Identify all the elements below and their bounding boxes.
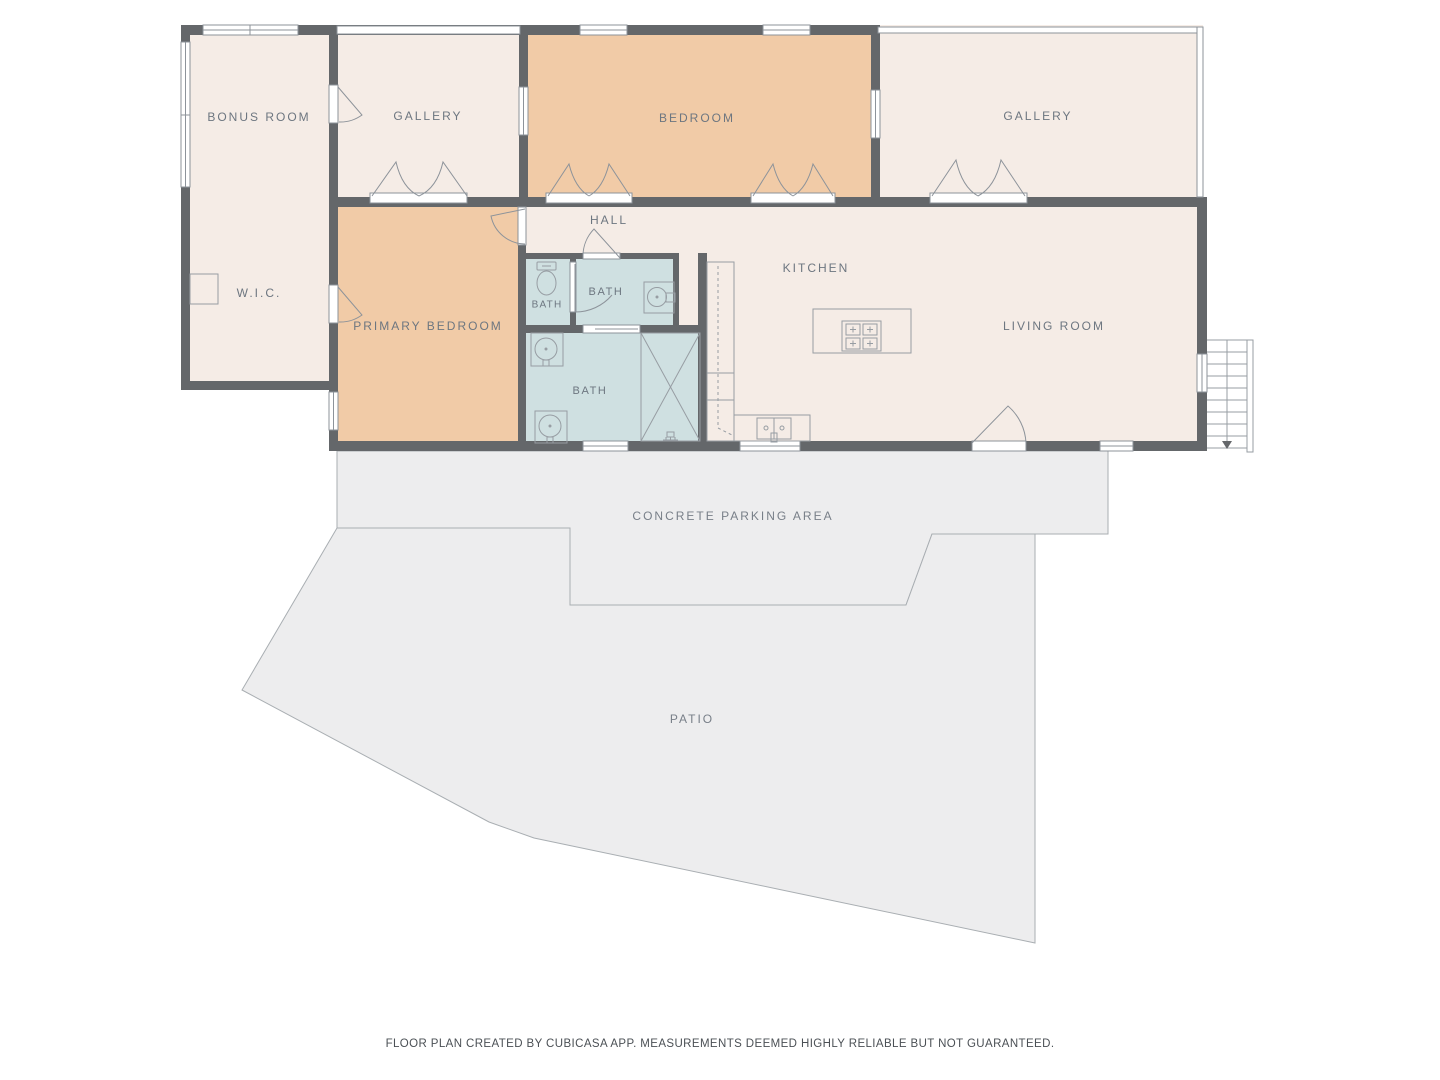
floor-plan-page: BONUS ROOM GALLERY BEDROOM GALLERY W.I.C… [0,0,1440,1080]
window-bonus-left [181,42,190,187]
room-label-bonus-room: BONUS ROOM [207,110,310,124]
gallery-right-glass-wall-side [1197,27,1203,197]
outdoor-areas [242,451,1108,943]
room-label-bath-small: BATH [532,300,563,311]
door-opening-bonus [329,85,338,123]
room-label-kitchen: KITCHEN [783,261,850,275]
window-bedroom-top-right [763,25,810,35]
window-bedroom-west [519,87,528,135]
door-opening-hall-bath [583,253,620,259]
disclaimer-text: FLOOR PLAN CREATED BY CUBICASA APP. MEAS… [386,1038,1055,1050]
room-label-gallery-left: GALLERY [393,109,462,123]
room-label-living-room: LIVING ROOM [1003,319,1105,333]
window-bath-bottom [583,441,628,451]
area-label-parking: CONCRETE PARKING AREA [632,509,833,523]
room-label-gallery-right: GALLERY [1003,109,1072,123]
floor-plan-drawing [0,0,1440,1080]
door-opening-primary [518,207,526,245]
gallery-left-glass-wall [337,26,520,34]
area-label-patio: PATIO [670,712,714,726]
window-bedroom-east [871,90,880,138]
room-label-bedroom: BEDROOM [659,111,735,125]
door-opening-wic [329,285,338,323]
gallery-right-glass-wall-top [878,27,1203,33]
window-bedroom-top-left [580,25,627,35]
room-label-primary-bedroom: PRIMARY BEDROOM [353,319,503,333]
room-label-bath-middle: BATH [589,286,624,298]
room-label-hall: HALL [590,213,628,227]
window-kitchen-bottom [740,441,800,451]
window-bonus-top [203,25,298,35]
room-label-bath-large: BATH [573,385,608,397]
stairs-icon [1207,340,1253,452]
window-living-bottom [1100,441,1133,451]
window-living-right [1197,354,1207,392]
door-opening-living [972,441,1026,451]
window-primary-left [329,392,338,430]
room-label-wic: W.I.C. [237,286,282,300]
